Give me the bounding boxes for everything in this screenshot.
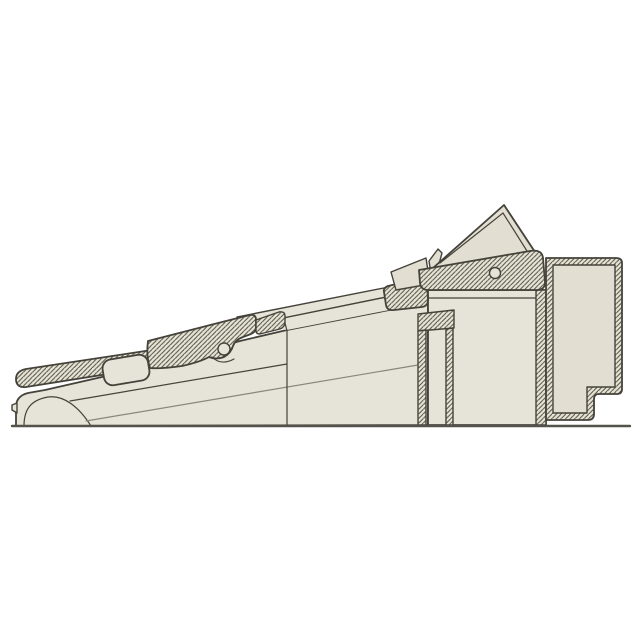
slot-wall-left [418, 330, 426, 425]
slot-cap [418, 310, 454, 331]
rail-hole [490, 268, 501, 279]
slot-wall-right [446, 328, 453, 425]
pivot-hole-small [218, 343, 230, 355]
left-tab [12, 403, 17, 413]
center-block-right-wall [536, 290, 546, 425]
cross-section-figure [0, 0, 640, 640]
technical-drawing-canvas [0, 0, 640, 640]
